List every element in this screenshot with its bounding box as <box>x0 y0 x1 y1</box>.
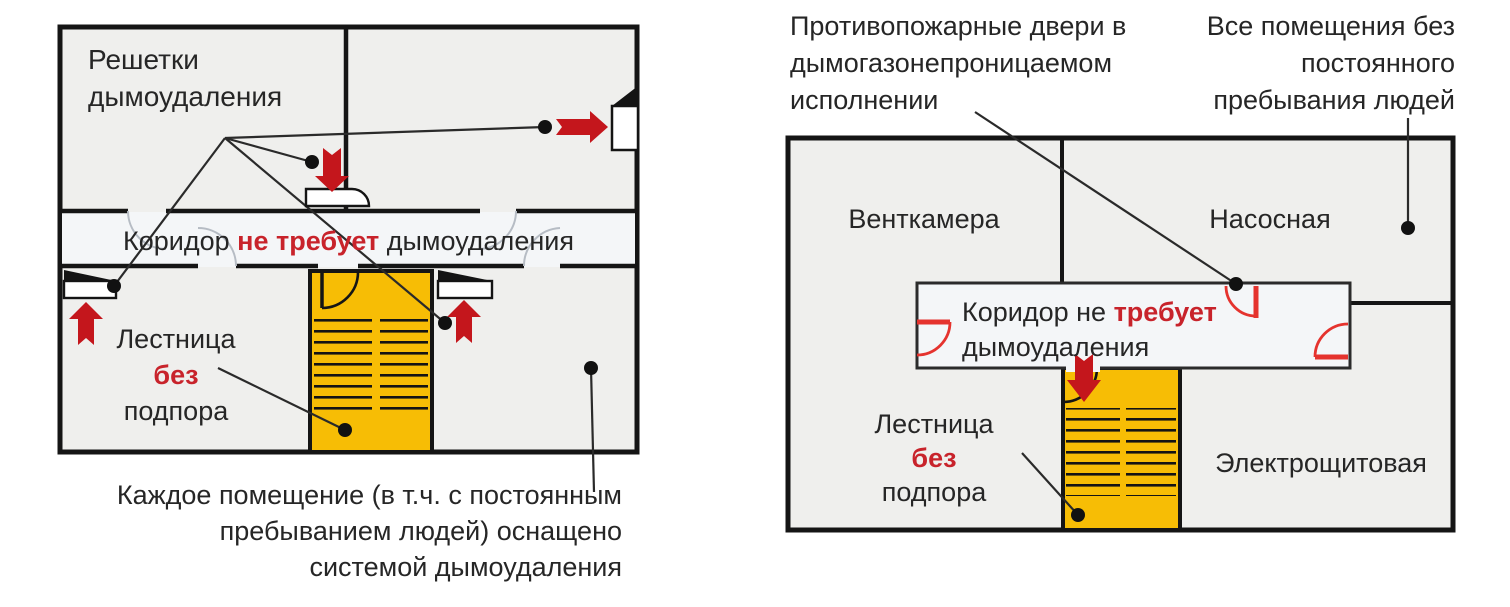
smoke-grille-corridor-top <box>306 189 369 206</box>
stairs-label-highlight: без <box>153 360 198 390</box>
grilles-label: Решеткидымоудаления <box>88 42 282 116</box>
rooms-caption: Все помещения безпостоянногопребывания л… <box>1155 8 1455 119</box>
stairs-label-line1: Лестница <box>874 409 993 439</box>
left-staircase <box>310 271 432 452</box>
corridor-label-prefix: Коридор не <box>962 297 1114 327</box>
grilles-label-line1: Решетки <box>88 44 199 75</box>
stairs-label-line3: подпора <box>882 477 986 507</box>
room-label-vent: Венткамера <box>848 202 999 238</box>
right-corridor-label: Коридор не требуетдымоудаления <box>962 295 1217 365</box>
smoke-removal-diagram: Решеткидымоудаления Коридор не требует д… <box>0 0 1510 607</box>
stair-treads <box>314 319 372 418</box>
left-caption: Каждое помещение (в т.ч. с постояннымпре… <box>70 477 622 585</box>
left-caption-line1: Каждое помещение (в т.ч. с постоянным <box>117 480 622 510</box>
fire-doors-caption-line1: Противопожарные двери в <box>790 11 1126 41</box>
fire-doors-caption-line3: исполнении <box>790 85 938 115</box>
corridor-label-prefix: Коридор <box>123 226 237 256</box>
grilles-label-line2: дымоудаления <box>88 81 282 112</box>
stair-treads <box>1126 408 1176 496</box>
stairs-label-line3: подпора <box>124 396 228 426</box>
room-label-electrical: Электрощитовая <box>1215 446 1427 482</box>
rooms-caption-line2: постоянного <box>1301 48 1455 78</box>
left-stairs-label: Лестницабезподпора <box>116 321 235 429</box>
stair-treads <box>380 319 428 418</box>
left-corridor-label: Коридор не требует дымоудаления <box>60 224 637 260</box>
corridor-label-line2: дымоудаления <box>962 332 1149 362</box>
room-label-pump: Насосная <box>1209 202 1330 238</box>
rooms-caption-line1: Все помещения без <box>1207 11 1455 41</box>
rooms-caption-line3: пребывания людей <box>1213 85 1455 115</box>
fire-doors-caption: Противопожарные двери вдымогазонепроница… <box>790 8 1126 119</box>
corridor-label-highlight: требует <box>1114 297 1217 327</box>
corridor-label-highlight: не требует <box>237 226 379 256</box>
stairs-label-highlight: без <box>911 443 956 473</box>
right-stairs-label: Лестницабезподпора <box>874 407 993 509</box>
stair-treads <box>1066 408 1120 496</box>
left-caption-line2: пребыванием людей) оснащено <box>220 516 622 546</box>
fire-doors-caption-line2: дымогазонепроницаемом <box>790 48 1112 78</box>
corridor-label-suffix: дымоудаления <box>379 226 574 256</box>
stairs-label-line1: Лестница <box>116 324 235 354</box>
left-caption-line3: системой дымоудаления <box>309 552 622 582</box>
